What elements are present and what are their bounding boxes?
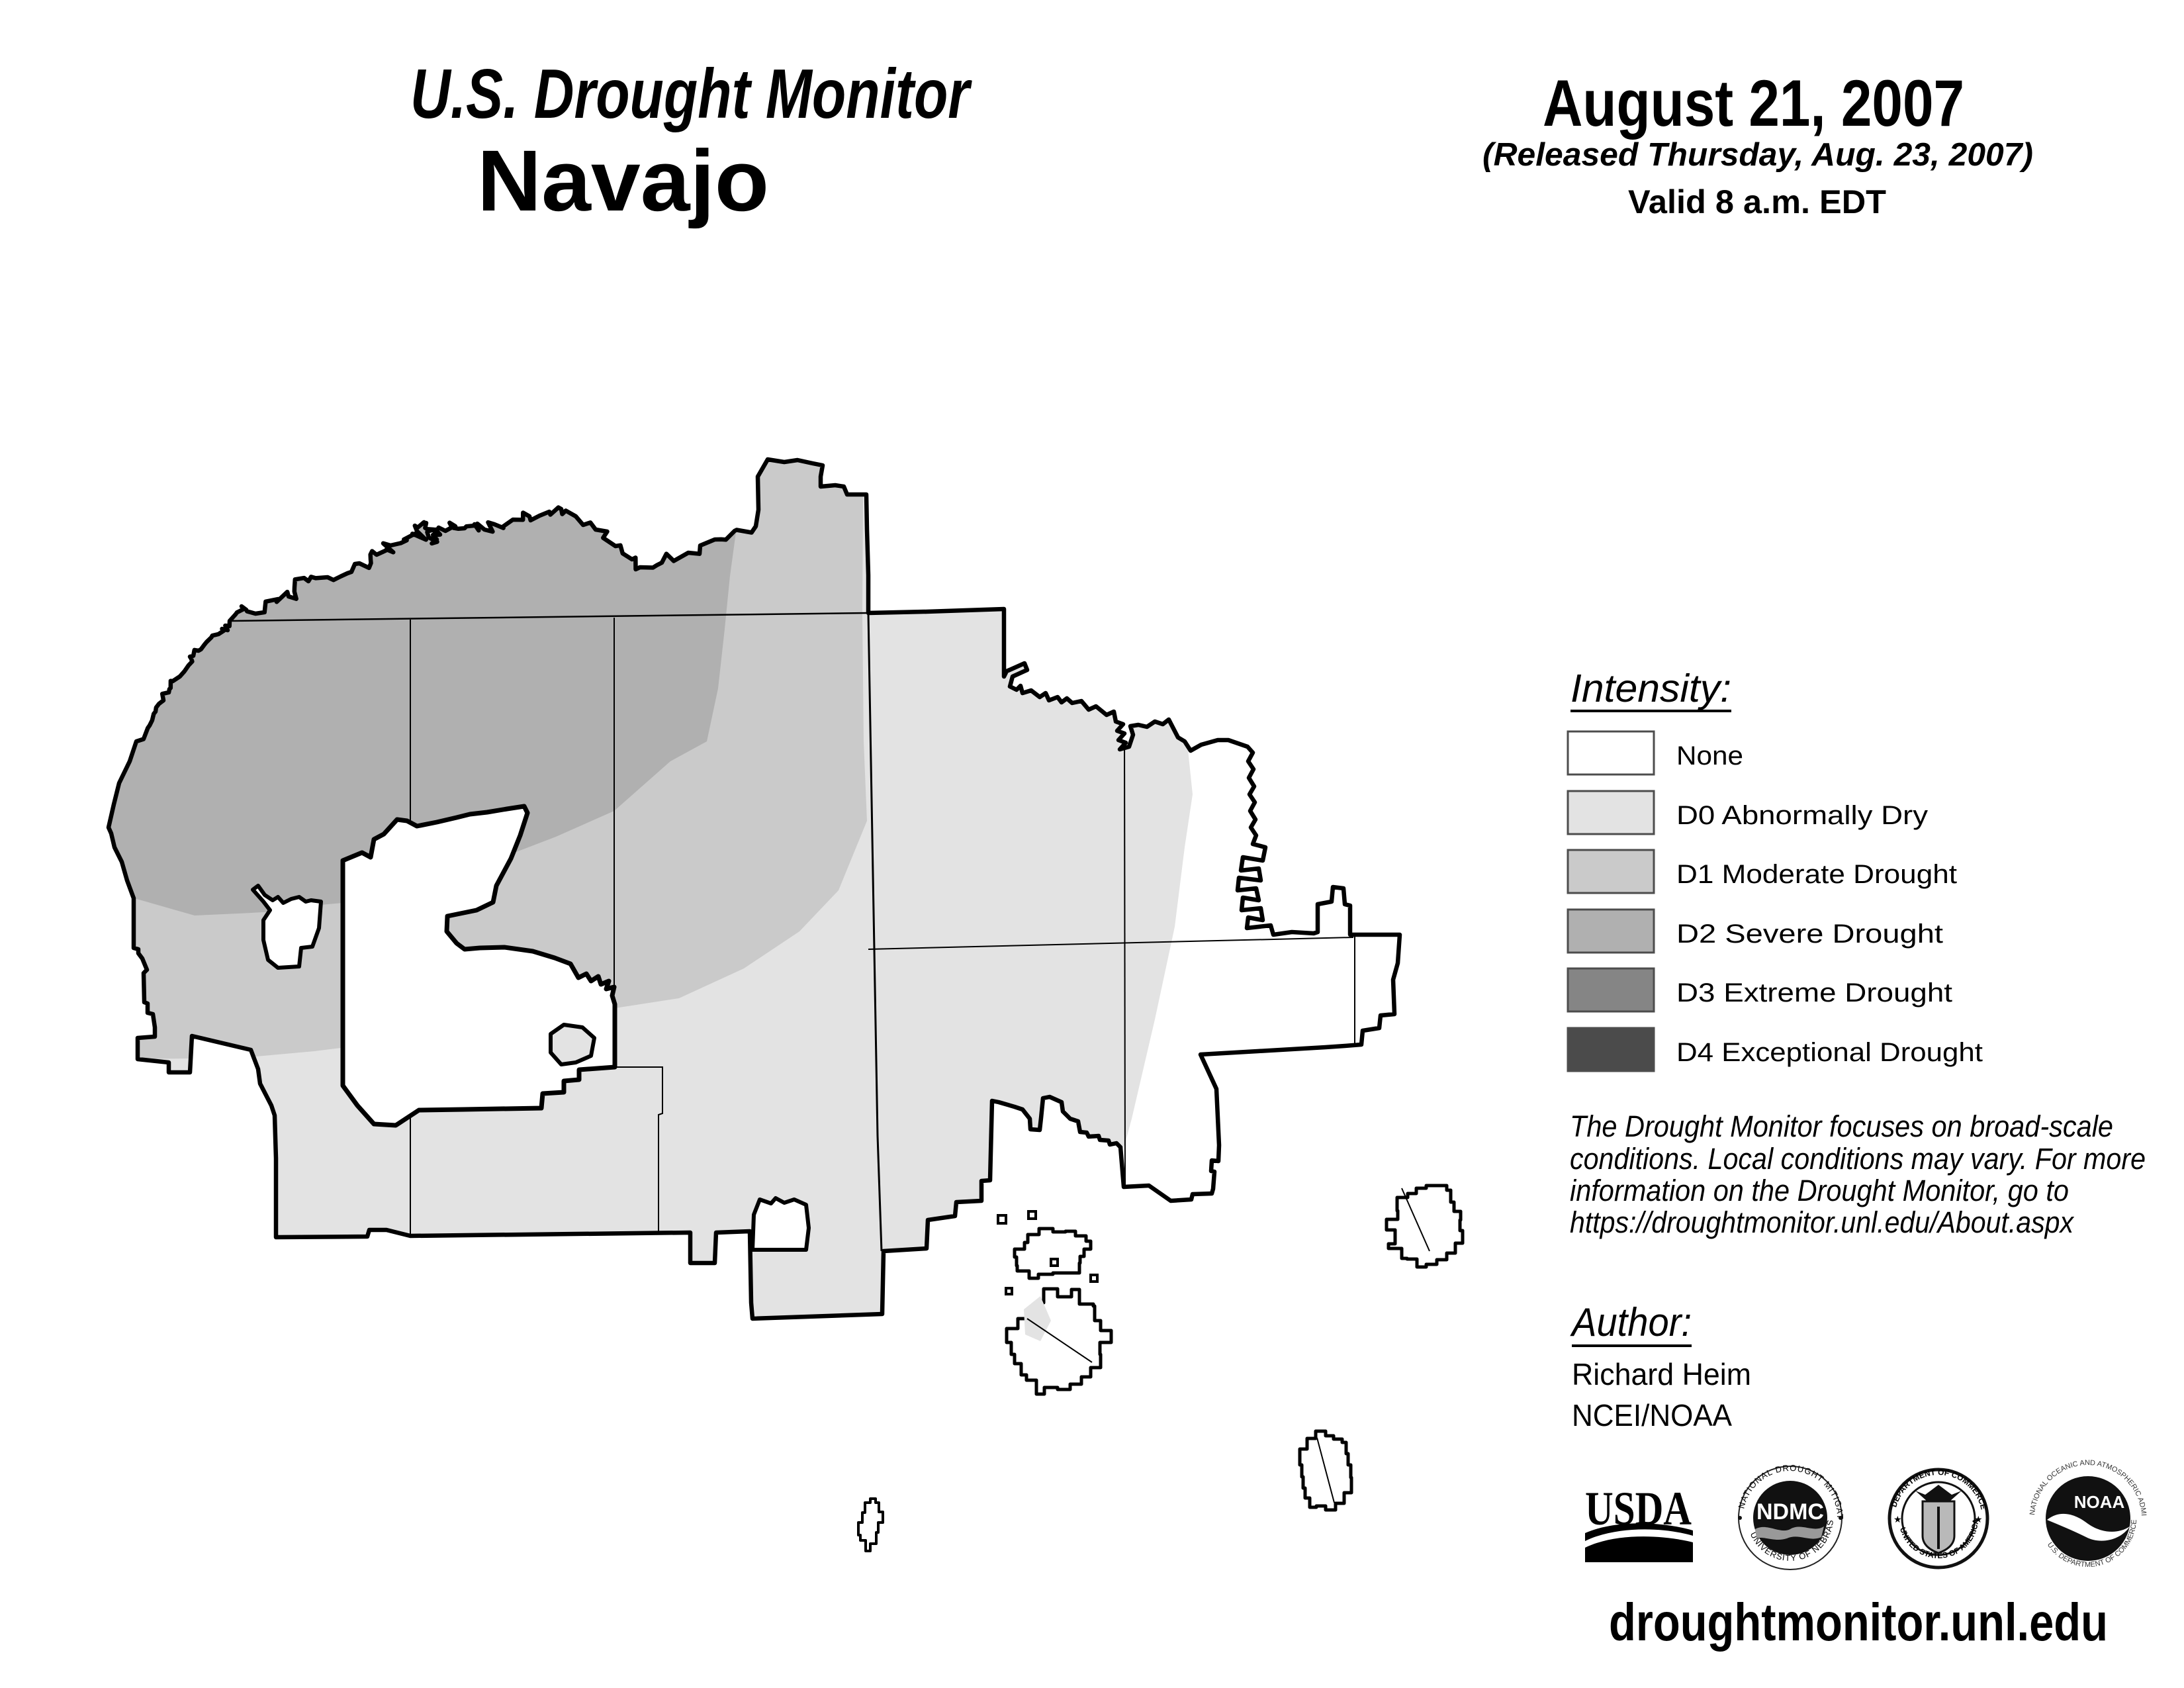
svg-text:None: None xyxy=(1676,741,1743,771)
svg-text:NDMC: NDMC xyxy=(1756,1499,1824,1524)
svg-text:NOAA: NOAA xyxy=(2074,1492,2125,1512)
svg-text:information on the Drought Mon: information on the Drought Monitor, go t… xyxy=(1570,1174,2069,1207)
svg-text:August 21, 2007: August 21, 2007 xyxy=(1543,66,1964,140)
svg-text:Valid 8 a.m. EDT: Valid 8 a.m. EDT xyxy=(1628,183,1886,220)
svg-text:Intensity:: Intensity: xyxy=(1570,667,1731,710)
svg-text:Author:: Author: xyxy=(1570,1300,1692,1344)
svg-text:https://droughtmonitor.unl.edu: https://droughtmonitor.unl.edu/About.asp… xyxy=(1570,1205,2074,1239)
svg-text:The Drought Monitor focuses on: The Drought Monitor focuses on broad-sca… xyxy=(1570,1109,2113,1143)
svg-text:U.S. Drought Monitor: U.S. Drought Monitor xyxy=(410,55,973,133)
svg-text:D3 Extreme Drought: D3 Extreme Drought xyxy=(1676,978,1952,1008)
svg-text:D1 Moderate Drought: D1 Moderate Drought xyxy=(1676,860,1957,889)
svg-text:★: ★ xyxy=(1974,1514,1983,1524)
svg-text:D2 Severe Drought: D2 Severe Drought xyxy=(1676,919,1943,949)
svg-text:NCEI/NOAA: NCEI/NOAA xyxy=(1572,1398,1732,1432)
svg-text:Navajo: Navajo xyxy=(477,132,769,229)
svg-text:★: ★ xyxy=(1893,1514,1902,1524)
svg-text:conditions. Local conditions m: conditions. Local conditions may vary. F… xyxy=(1570,1142,2146,1176)
svg-text:Richard Heim: Richard Heim xyxy=(1572,1357,1751,1391)
svg-text:D4 Exceptional Drought: D4 Exceptional Drought xyxy=(1676,1038,1983,1067)
svg-text:(Released Thursday, Aug. 23, 2: (Released Thursday, Aug. 23, 2007) xyxy=(1482,137,2033,173)
svg-text:D0 Abnormally Dry: D0 Abnormally Dry xyxy=(1676,801,1928,830)
svg-text:droughtmonitor.unl.edu: droughtmonitor.unl.edu xyxy=(1609,1593,2108,1652)
